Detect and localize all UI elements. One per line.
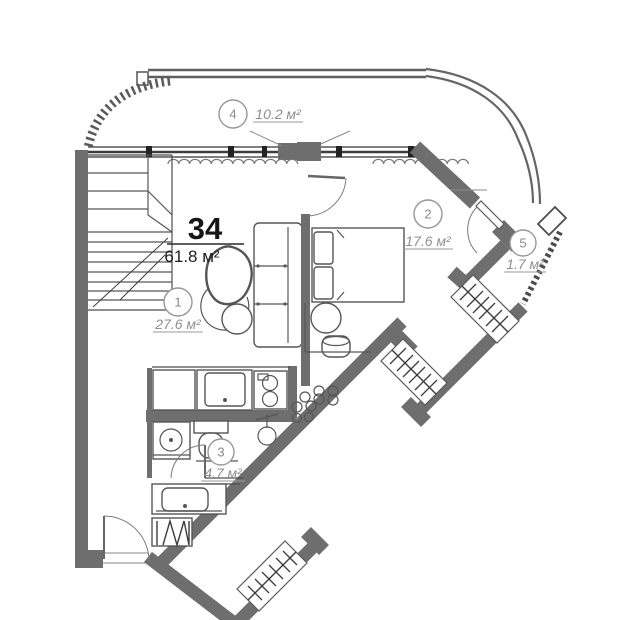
room-area-3: 4.7 м² <box>204 465 243 481</box>
room-area-1: 27.6 м² <box>154 316 202 332</box>
kitchen <box>146 366 297 422</box>
balcony-door-leaf <box>316 131 350 146</box>
mullion <box>262 146 267 157</box>
apartment-total-area: 61.8 м² <box>164 247 219 266</box>
stairs-icon <box>88 155 172 310</box>
northeast-diagonal-wall <box>415 147 475 203</box>
mullion <box>336 146 342 157</box>
svg-text:3: 3 <box>217 445 224 460</box>
exterior-walls <box>75 147 523 620</box>
window-wall <box>88 131 468 164</box>
balcony-door-leaf <box>250 131 282 146</box>
sink-drain <box>223 398 227 402</box>
kitchen-bath-wall <box>146 410 296 422</box>
svg-text:4: 4 <box>229 107 236 122</box>
loggia-door-swing <box>468 207 477 253</box>
window-wave-symbol <box>168 159 298 164</box>
wardrobe-icon <box>237 541 307 611</box>
room-area-4: 10.2 м² <box>255 106 302 122</box>
bedroom-door-swing <box>308 178 346 216</box>
mullion <box>228 146 234 157</box>
balcony-railing <box>88 69 540 204</box>
left-wall <box>75 150 88 560</box>
pouf-icon <box>322 336 350 357</box>
pillow <box>314 267 333 299</box>
apartment-number: 34 <box>188 211 223 246</box>
toilet-tank <box>194 421 228 433</box>
room-area-5: 1.7 м² <box>506 256 545 272</box>
entrance-door-swing <box>104 516 149 561</box>
loggia-window <box>538 207 566 235</box>
svg-text:2: 2 <box>424 207 431 222</box>
bottom-diagonal-wall <box>148 557 238 620</box>
living-bedroom-wall <box>301 214 310 386</box>
door-wall-stub <box>297 142 321 161</box>
main-diagonal-wall <box>160 322 402 564</box>
svg-text:5: 5 <box>519 236 526 251</box>
hatched-curved-railing <box>88 81 170 148</box>
pillow <box>314 232 333 264</box>
loggia-side-wall <box>470 245 505 280</box>
svg-text:1: 1 <box>174 295 181 310</box>
bedside-table-icon <box>311 303 341 333</box>
bottom-left-stub <box>75 550 103 568</box>
floor-plan-canvas: 34 61.8 м² 1 27.6 м² 2 17.6 м² 3 4.7 м² … <box>0 0 640 620</box>
loggia-door-leaf <box>476 201 504 229</box>
room-area-2: 17.6 м² <box>405 233 452 249</box>
floor-plan-svg: 34 61.8 м² 1 27.6 м² 2 17.6 м² 3 4.7 м² … <box>0 0 640 620</box>
kitchen-cabinet <box>153 370 195 410</box>
sofa-icon <box>254 223 302 347</box>
side-table-icon <box>222 304 252 334</box>
bedroom-door-leaf <box>308 176 345 178</box>
